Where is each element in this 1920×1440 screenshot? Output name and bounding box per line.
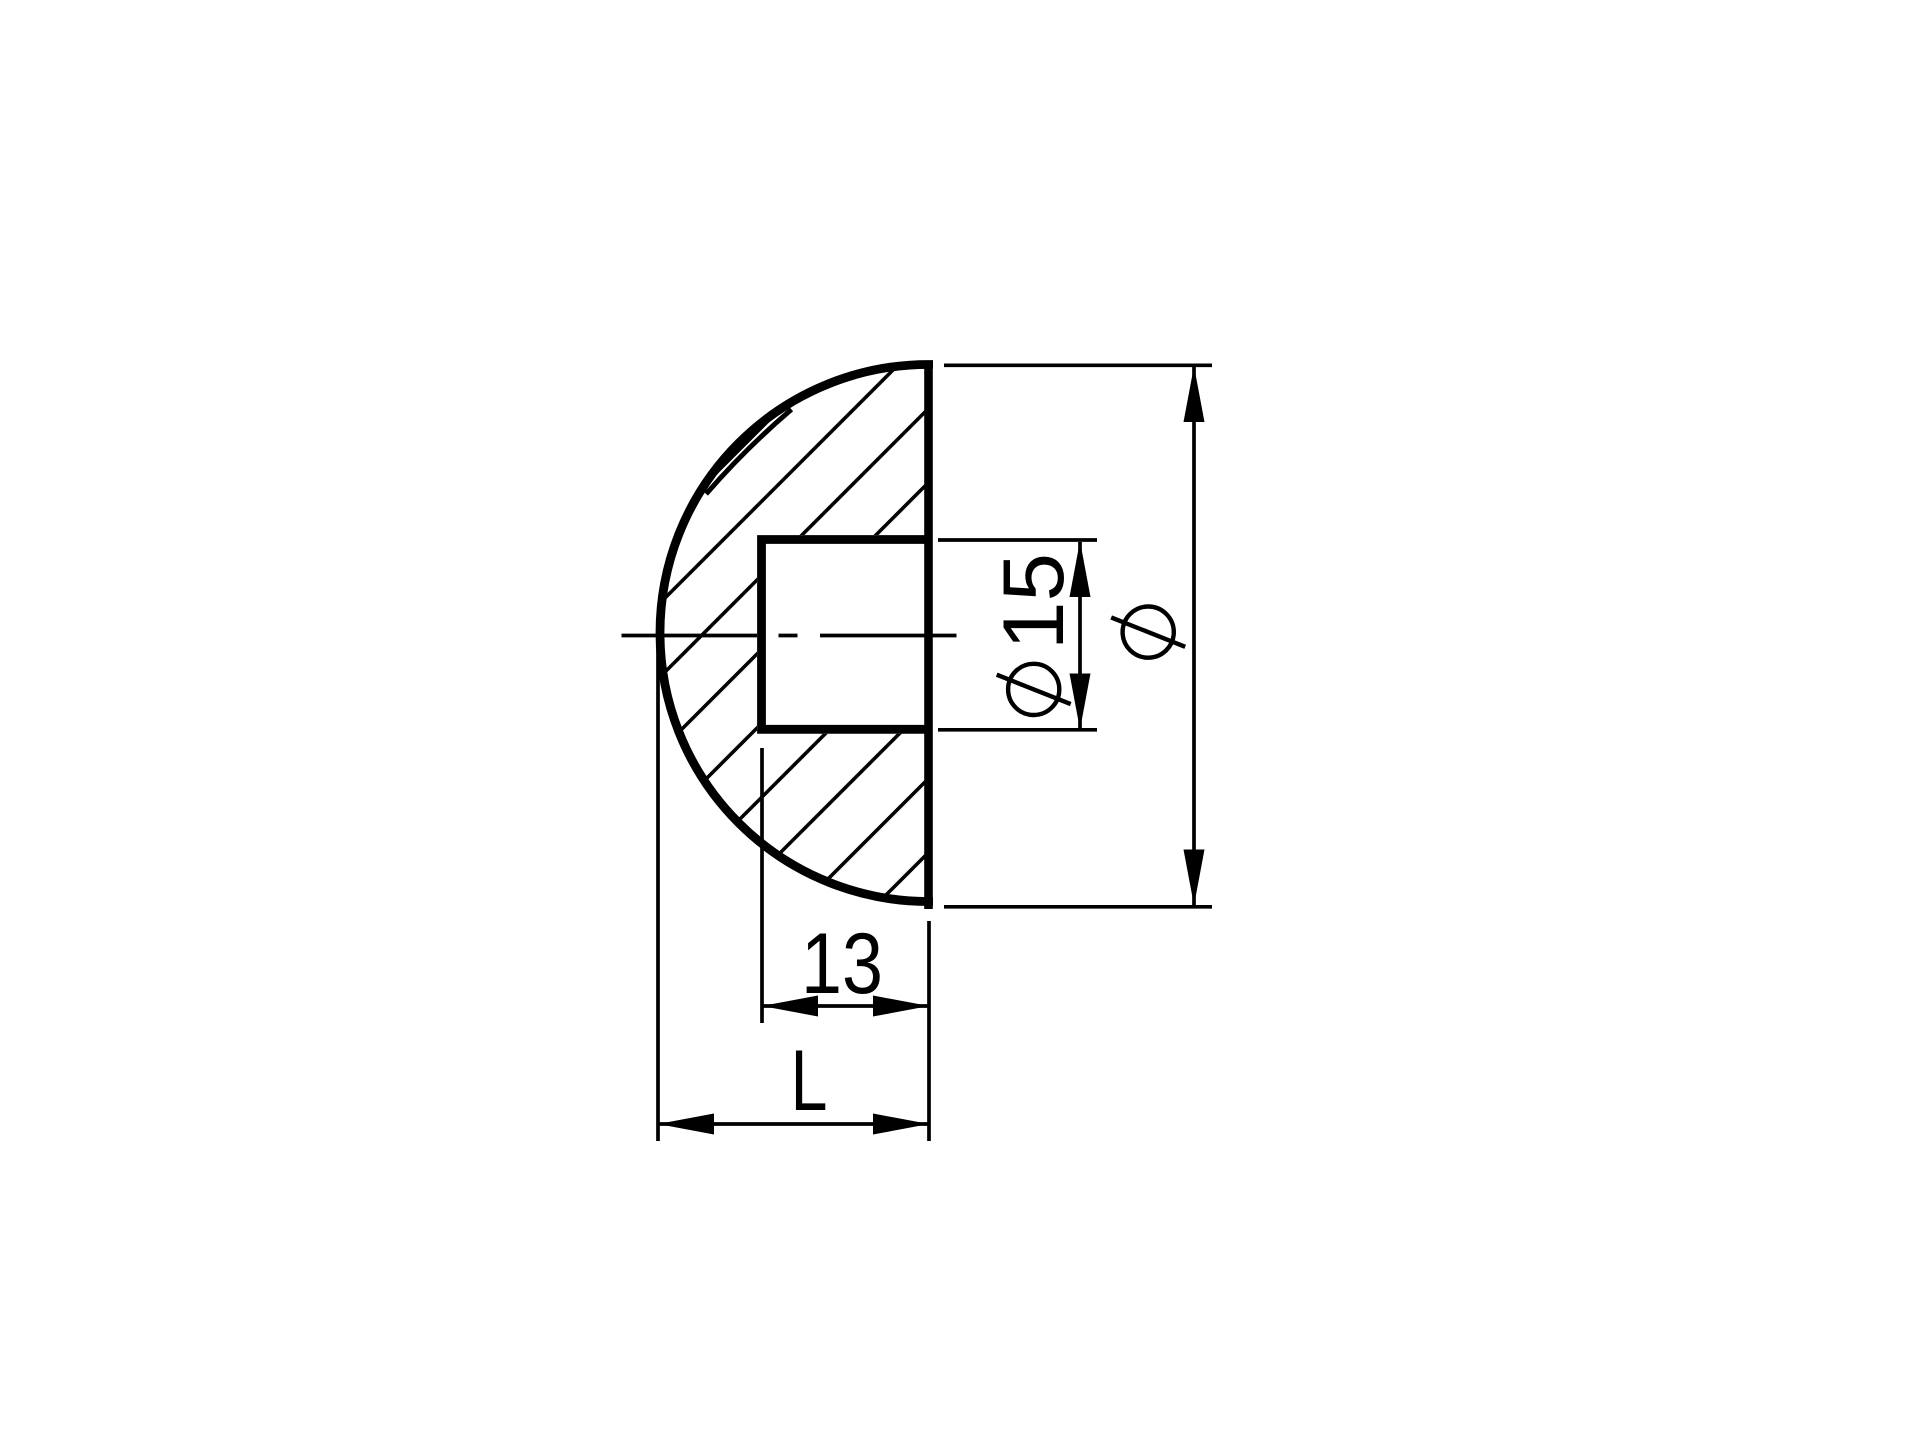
svg-text:15: 15	[986, 553, 1082, 650]
svg-text:13: 13	[801, 916, 883, 1012]
svg-text:L: L	[791, 1033, 828, 1129]
